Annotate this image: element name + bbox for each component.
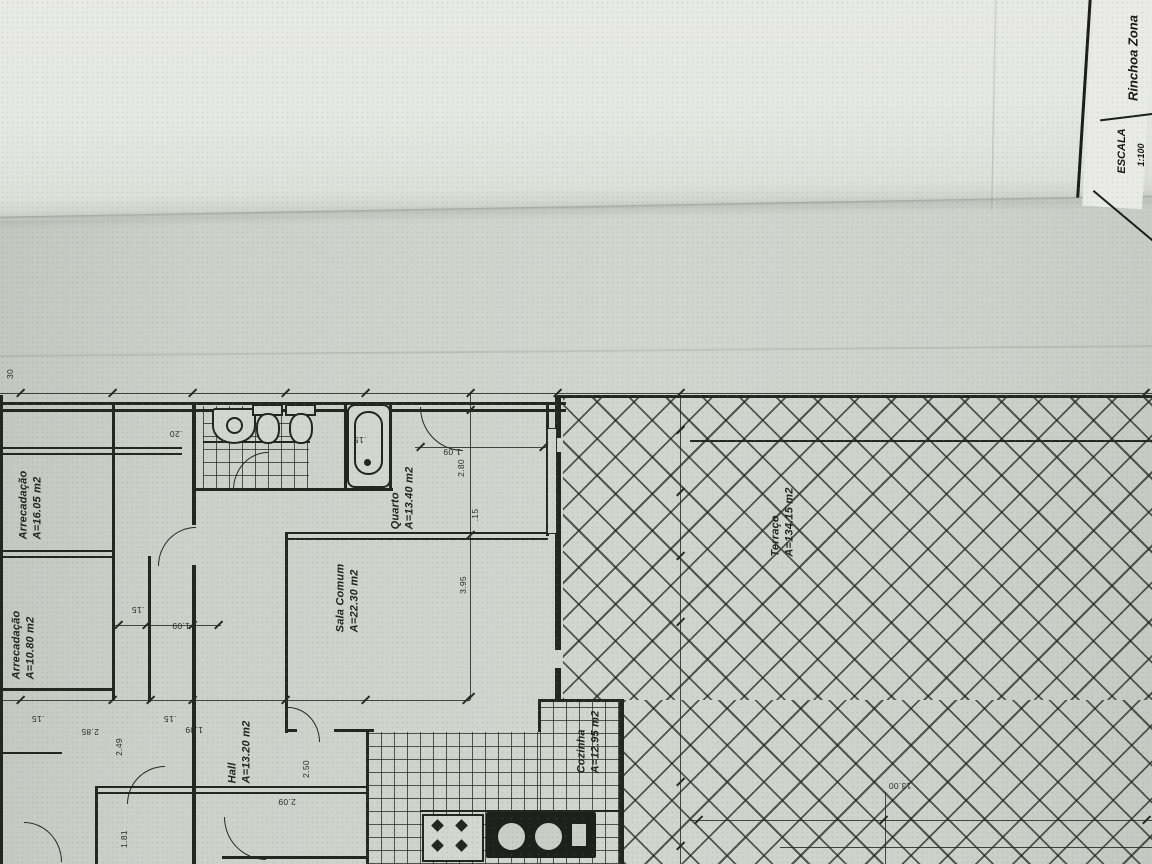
washbasin-bowl (226, 417, 243, 434)
title-block-zone-title: Rinchoa Zona (1126, 15, 1141, 101)
sink-bowl (496, 821, 527, 852)
stove-symbol (422, 814, 484, 862)
door-arc (420, 407, 463, 451)
dimension-line (470, 394, 471, 700)
dimension-label: 13.00 (889, 781, 912, 791)
dimension-label: 2.09 (278, 797, 296, 807)
door-arc (158, 527, 196, 566)
dimension-label: .20 (170, 429, 183, 439)
room-name: Hall (226, 721, 240, 784)
dimension-line (0, 700, 470, 701)
door-leaf (547, 428, 557, 534)
room-name: Sala Comum (334, 564, 348, 633)
wall (0, 550, 114, 552)
wall (0, 688, 114, 691)
room-label-arrecadacao-1: Arrecadação A=16.05 m2 (17, 471, 46, 540)
wall (285, 538, 548, 540)
dimension-label: 3.95 (458, 576, 468, 594)
room-area: A=12.95 m2 (589, 711, 603, 774)
stove-burner (431, 819, 444, 832)
dimension-label: 1.09 (443, 447, 461, 457)
dimension-label: 1.81 (119, 830, 129, 848)
room-name: Arrecadação (17, 471, 31, 540)
dimension-label: .15 (132, 605, 145, 615)
room-area: A=134.15 m2 (783, 487, 797, 556)
dimension-line (780, 847, 1152, 848)
toilet-symbol (256, 413, 280, 444)
paper-top-band (0, 0, 1152, 221)
stove-burner (455, 819, 468, 832)
dimension-line (415, 447, 547, 448)
room-area: A=16.05 m2 (31, 471, 45, 540)
door-arc (127, 766, 165, 804)
wall (0, 447, 182, 449)
wall (148, 556, 151, 702)
wall (538, 699, 541, 732)
wall (0, 395, 3, 864)
wall (196, 488, 393, 491)
wall (619, 699, 624, 864)
room-label-hall: Hall A=13.20 m2 (226, 721, 255, 784)
paper-fold-crease-faint (0, 345, 1152, 357)
dimension-label: 2.50 (301, 760, 311, 778)
dimension-label: 30 (5, 369, 15, 379)
room-name: Terraço (769, 487, 783, 556)
dimension-line (885, 792, 886, 864)
bathtub-symbol (347, 404, 391, 488)
room-area: A=13.40 m2 (403, 467, 417, 530)
dimension-line (680, 397, 681, 864)
wall (192, 565, 196, 864)
dimension-label: 2.49 (114, 738, 124, 756)
wall (538, 699, 622, 702)
floor-plan-photo: Rinchoa Zona ESCALA 1:100 (0, 0, 1152, 864)
room-area: A=22.30 m2 (348, 564, 362, 633)
wall (95, 786, 98, 864)
wall (556, 395, 1152, 398)
wall (690, 440, 1152, 442)
door-arc (288, 707, 320, 742)
dimension-label: 1.09 (172, 621, 190, 631)
wall (0, 402, 566, 405)
title-block-scale-label: ESCALA (1116, 128, 1128, 173)
dimension-label: 2.80 (456, 459, 466, 477)
room-label-quarto: Quarto A=13.40 m2 (389, 467, 418, 530)
dimension-label: .15 (470, 509, 480, 522)
wall (192, 403, 196, 525)
wall (0, 556, 114, 558)
terrace-hatch (563, 398, 1152, 700)
wall (0, 453, 182, 455)
room-label-arrecadacao-2: Arrecadação A=10.80 m2 (10, 611, 39, 680)
bidet-symbol (289, 413, 313, 444)
wall (285, 532, 548, 534)
dimension-line (690, 820, 1152, 821)
sink-bowl (533, 821, 564, 852)
wall (0, 409, 566, 412)
dimension-label: 1.09 (185, 725, 203, 735)
dimension-line (113, 625, 221, 626)
room-label-cozinha: Cozinha A=12.95 m2 (575, 711, 604, 774)
stove-burner (431, 839, 444, 852)
room-area: A=13.20 m2 (240, 721, 254, 784)
room-name: Quarto (389, 467, 403, 530)
dimension-tick (214, 620, 223, 629)
wall (285, 532, 288, 733)
wall (555, 668, 561, 702)
title-block (1082, 0, 1152, 209)
stove-burner (455, 839, 468, 852)
dimension-line (0, 393, 1152, 394)
wall (366, 729, 369, 864)
bathtub-drain (364, 459, 371, 466)
washbasin-symbol (212, 408, 256, 444)
wall (222, 856, 368, 859)
wall (0, 752, 62, 754)
dimension-label: 2.85 (81, 727, 99, 737)
room-name: Cozinha (575, 711, 589, 774)
title-block-scale-value: 1:100 (1136, 143, 1146, 166)
room-area: A=10.80 m2 (24, 611, 38, 680)
room-label-sala-comum: Sala Comum A=22.30 m2 (334, 564, 363, 633)
room-name: Arrecadação (10, 611, 24, 680)
dimension-label: .15 (354, 435, 367, 445)
room-label-terraco: Terraço A=134.15 m2 (769, 487, 798, 556)
dimension-label: .15 (32, 714, 45, 724)
door-arc (24, 822, 62, 862)
door-arc (224, 817, 266, 860)
dimension-label: .15 (164, 714, 177, 724)
sink-drainboard (572, 824, 586, 846)
kitchen-sink-symbol (486, 812, 596, 858)
